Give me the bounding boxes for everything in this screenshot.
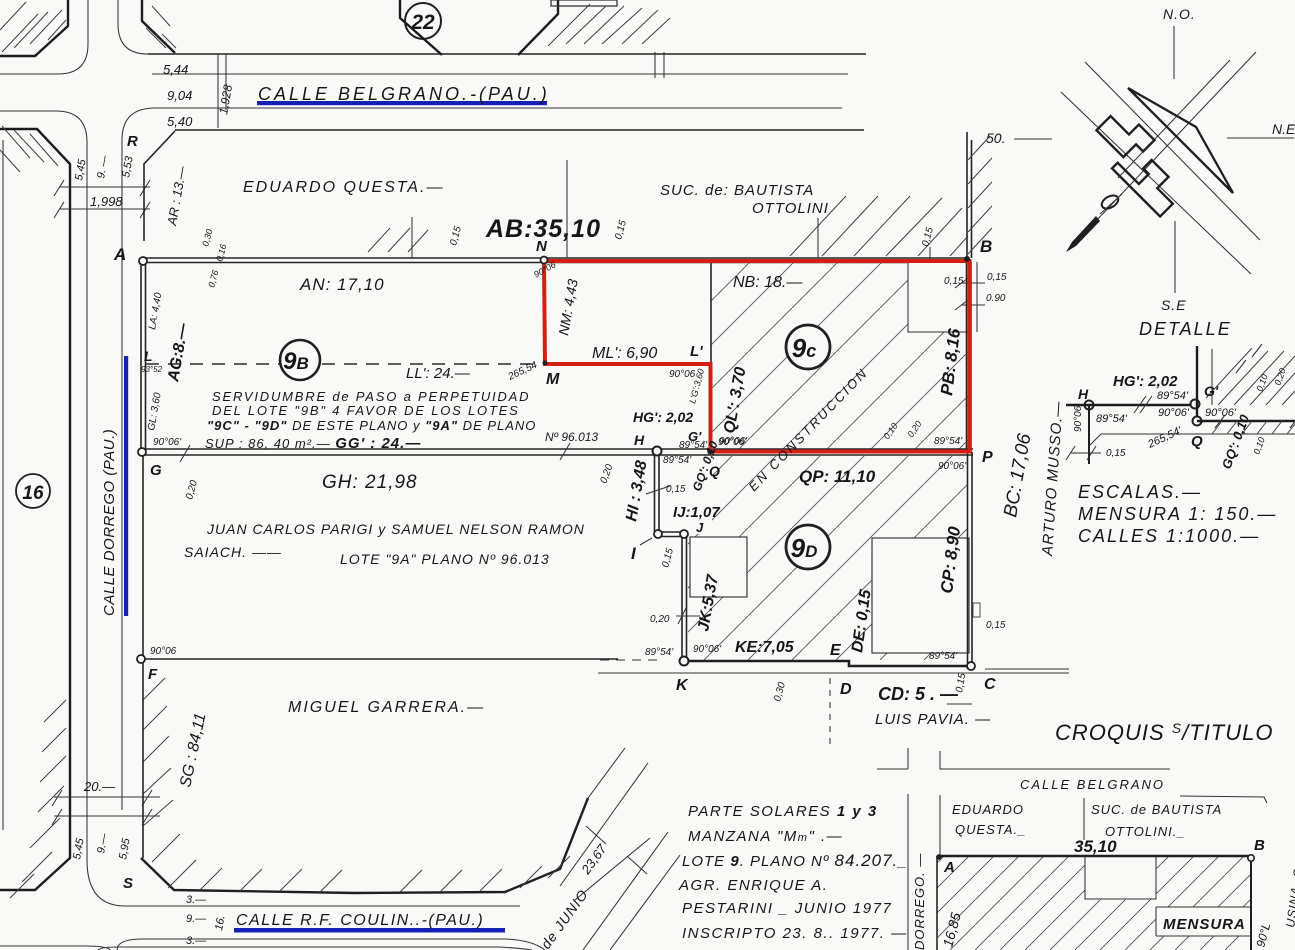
svg-text:SUC. de BAUTISTA: SUC. de BAUTISTA <box>1091 802 1222 817</box>
svg-text:LOTE "9A" PLANO Nº 96.013: LOTE "9A" PLANO Nº 96.013 <box>340 551 550 567</box>
svg-text:35,10: 35,10 <box>1074 837 1117 856</box>
svg-text:5,44: 5,44 <box>163 62 188 77</box>
svg-text:J: J <box>696 520 704 535</box>
svg-text:9,04: 9,04 <box>167 88 192 103</box>
svg-text:89°54': 89°54' <box>1096 413 1128 425</box>
svg-text:3.—: 3.— <box>186 894 207 906</box>
svg-text:0,15: 0,15 <box>986 620 1006 631</box>
svg-text:DORREGO. —: DORREGO. — <box>912 853 927 950</box>
svg-text:AGR. ENRIQUE A.: AGR. ENRIQUE A. <box>678 877 828 894</box>
svg-text:G': G' <box>1204 383 1219 399</box>
svg-text:Q: Q <box>1191 433 1203 450</box>
svg-text:MIGUEL GARRERA.—: MIGUEL GARRERA.— <box>288 699 485 716</box>
svg-text:90°06': 90°06' <box>718 437 747 448</box>
svg-text:D: D <box>840 681 852 698</box>
svg-text:CD: 5 . —: CD: 5 . — <box>878 684 959 704</box>
svg-text:OTTOLINI._: OTTOLINI._ <box>1105 824 1186 839</box>
svg-text:DEL LOTE "9B" 4 FAVOR DE: DEL LOTE "9B" 4 FAVOR DE LOS LOTES <box>212 403 520 418</box>
svg-text:90°06: 90°06 <box>150 646 177 657</box>
svg-text:SAIACH. ——: SAIACH. —— <box>184 544 282 560</box>
svg-text:5,40: 5,40 <box>167 114 193 129</box>
svg-text:N: N <box>536 238 548 255</box>
svg-text:CALLE R.F. COULIN..-(PAU.): CALLE R.F. COULIN..-(PAU.) <box>236 912 484 929</box>
svg-text:HG': 2,02: HG': 2,02 <box>633 409 693 425</box>
svg-text:GH: 21,98: GH: 21,98 <box>322 472 418 493</box>
svg-text:LOTE 9. PLANO Nº 84.207._: LOTE 9. PLANO Nº 84.207._ <box>682 851 908 870</box>
svg-text:0,20: 0,20 <box>650 614 670 625</box>
svg-text:89°54': 89°54' <box>663 455 692 466</box>
svg-text:20.—: 20.— <box>83 779 116 794</box>
svg-text:K: K <box>676 677 689 694</box>
svg-text:LUIS PAVIA. —: LUIS PAVIA. — <box>875 711 991 728</box>
svg-text:S.E: S.E <box>1161 297 1187 313</box>
svg-text:AN: 17,10: AN: 17,10 <box>299 275 385 294</box>
svg-text:DETALLE: DETALLE <box>1139 319 1232 339</box>
svg-text:B: B <box>980 237 992 256</box>
svg-text:0,15: 0,15 <box>1106 448 1126 459</box>
svg-text:50.: 50. <box>986 130 1005 146</box>
svg-text:90°06': 90°06' <box>1073 403 1084 432</box>
svg-text:EDUARDO QUESTA.—: EDUARDO QUESTA.— <box>243 179 445 196</box>
svg-text:CALLE BELGRANO.-(PAU.): CALLE BELGRANO.-(PAU.) <box>258 84 550 104</box>
svg-text:3.—: 3.— <box>186 935 207 947</box>
svg-text:A: A <box>113 245 126 264</box>
svg-text:B: B <box>1254 837 1265 854</box>
svg-text:MENSURA 1: 150.—: MENSURA 1: 150.— <box>1078 504 1277 524</box>
svg-text:P: P <box>982 449 993 466</box>
svg-text:OTTOLINI: OTTOLINI <box>752 200 829 217</box>
svg-text:G: G <box>150 462 162 479</box>
svg-text:SERVIDUMBRE de PASO a PERP: SERVIDUMBRE de PASO a PERPETUIDAD <box>212 389 530 404</box>
svg-text:93°52: 93°52 <box>141 365 163 374</box>
svg-text:H: H <box>634 432 645 448</box>
svg-text:IJ:1,07: IJ:1,07 <box>673 504 720 521</box>
svg-text:QP: 11,10: QP: 11,10 <box>799 467 876 486</box>
svg-text:CROQUIS S/TITULO: CROQUIS S/TITULO <box>1055 720 1273 745</box>
svg-text:N.O.: N.O. <box>1163 6 1196 22</box>
svg-text:16: 16 <box>22 483 44 504</box>
svg-text:ML': 6,90: ML': 6,90 <box>592 345 657 362</box>
svg-text:ESCALAS.—: ESCALAS.— <box>1078 482 1202 502</box>
svg-text:NB: 18.—: NB: 18.— <box>733 274 803 291</box>
svg-text:MENSURA: MENSURA <box>1163 916 1246 933</box>
svg-text:SUP : 86, 40 m².— GG' : 24.: SUP : 86, 40 m².— GG' : 24.— <box>205 435 421 452</box>
svg-text:CALLE BELGRANO: CALLE BELGRANO <box>1020 777 1165 792</box>
svg-text:Nº 96.013: Nº 96.013 <box>545 430 598 444</box>
svg-text:MANZANA "Mm" .—: MANZANA "Mm" .— <box>688 828 843 845</box>
svg-text:JUAN CARLOS PARIGI y SA: JUAN CARLOS PARIGI y SAMUEL NELSON RAMON <box>206 521 585 537</box>
svg-text:F: F <box>148 666 158 683</box>
svg-text:PARTE SOLARES 1 y 3: PARTE SOLARES 1 y 3 <box>688 803 878 820</box>
svg-text:S: S <box>123 875 133 892</box>
svg-text:CALLES 1:1000.—: CALLES 1:1000.— <box>1078 526 1260 546</box>
svg-text:0,15: 0,15 <box>987 272 1007 283</box>
svg-text:H: H <box>1078 386 1089 402</box>
svg-text:90°06: 90°06 <box>669 369 696 380</box>
svg-text:HG': 2,02: HG': 2,02 <box>1113 373 1178 390</box>
svg-text:INSCRIPTO 23. 8.. 1977. —: INSCRIPTO 23. 8.. 1977. — <box>682 925 908 942</box>
svg-text:90°06': 90°06' <box>1205 407 1237 419</box>
svg-text:A: A <box>943 859 955 876</box>
svg-text:89°54': 89°54' <box>645 647 674 658</box>
svg-text:1,998: 1,998 <box>90 194 123 209</box>
svg-text:90°06': 90°06' <box>938 461 967 472</box>
svg-text:90°06': 90°06' <box>693 644 722 655</box>
svg-text:EDUARDO: EDUARDO <box>952 802 1024 817</box>
svg-text:0.90: 0.90 <box>986 293 1006 304</box>
svg-text:N.E: N.E <box>1272 121 1295 137</box>
svg-text:L': L' <box>690 343 703 360</box>
svg-text:90°06': 90°06' <box>1158 407 1190 419</box>
svg-text:9.—: 9.— <box>186 913 207 925</box>
svg-text:90°06': 90°06' <box>153 437 182 448</box>
svg-text:M: M <box>546 371 560 388</box>
svg-text:89°54': 89°54' <box>929 651 958 662</box>
svg-text:"9C" - "9D" DE ESTE PLANO: "9C" - "9D" DE ESTE PLANO y "9A" DE PLAN… <box>207 418 536 433</box>
svg-text:0,15: 0,15 <box>944 276 964 287</box>
svg-text:22: 22 <box>410 11 435 34</box>
svg-text:E: E <box>830 642 842 659</box>
svg-text:C: C <box>984 676 996 693</box>
svg-text:PESTARINI _ JUNIO 1977: PESTARINI _ JUNIO 1977 <box>682 900 892 917</box>
svg-text:89°54': 89°54' <box>934 436 963 447</box>
svg-text:SUC. de: BAUTISTA: SUC. de: BAUTISTA <box>660 182 814 199</box>
svg-text:CALLE DORREGO (PAU.): CALLE DORREGO (PAU.) <box>101 429 118 616</box>
svg-text:LL': 24.—: LL': 24.— <box>406 365 471 382</box>
svg-text:89°54': 89°54' <box>1157 390 1189 402</box>
svg-text:L: L <box>144 348 153 364</box>
svg-text:QUESTA._: QUESTA._ <box>955 822 1026 837</box>
svg-text:0,15: 0,15 <box>666 484 686 495</box>
svg-text:KE:7,05: KE:7,05 <box>735 639 795 656</box>
svg-text:R: R <box>127 133 138 150</box>
